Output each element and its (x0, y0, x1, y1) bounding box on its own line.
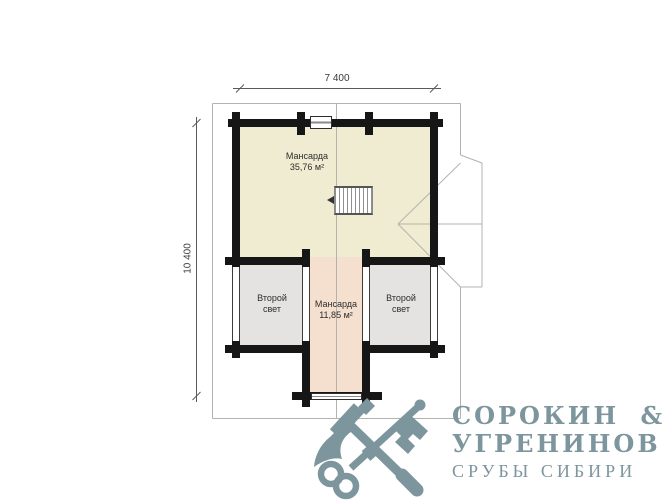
room-name: Мансарда (267, 151, 347, 162)
wall-mid-left (225, 257, 310, 265)
room-name: Мансарда (306, 299, 366, 310)
logo-axe-key-icon (314, 393, 446, 502)
stairs-direction-arrow-icon (327, 196, 334, 204)
room-label-void-right: Второй свет (379, 293, 423, 315)
log-end-stub-top-b (365, 112, 373, 135)
wall-mid-right (362, 257, 445, 265)
room-label-attic-small: Мансарда 11,85 м² (306, 299, 366, 321)
room-label-attic-main: Мансарда 35,76 м² (267, 151, 347, 173)
room-area: 35,76 м² (267, 162, 347, 173)
dimension-width-label: 7 400 (311, 73, 363, 84)
logo-text: СОРОКИН & УГРЕНИНОВ СРУБЫ СИБИРИ (452, 402, 665, 483)
dimension-height-label: 10 400 (183, 233, 194, 285)
room-area: 11,85 м² (306, 310, 366, 321)
wall-right-upper (430, 112, 438, 267)
wall-center-right-top (362, 249, 370, 267)
window-icon-top-wall (310, 116, 332, 129)
window-icon-right-outer (430, 267, 438, 341)
dormer-ridge-lines (398, 163, 482, 287)
logo-company-line1: СОРОКИН & (452, 402, 665, 430)
dimension-lines (193, 85, 442, 403)
wall-void-left-bottom (225, 345, 310, 353)
logo-company-line2: УГРЕНИНОВ (452, 430, 665, 458)
wall-void-right-bottom (362, 345, 445, 353)
dormer-outline (461, 155, 483, 287)
window-icon-left-outer (232, 267, 240, 341)
log-end-stub-top-a (297, 112, 305, 135)
room-label-void-left: Второй свет (250, 293, 294, 315)
floor-plan-page: { "plan": { "dim_width": "7 400", "dim_h… (0, 0, 669, 502)
wall-top (228, 119, 443, 127)
wall-center-left-top (302, 249, 310, 267)
wall-left-upper (232, 112, 240, 267)
stairs-icon (334, 186, 373, 215)
logo-tagline: СРУБЫ СИБИРИ (452, 459, 665, 483)
